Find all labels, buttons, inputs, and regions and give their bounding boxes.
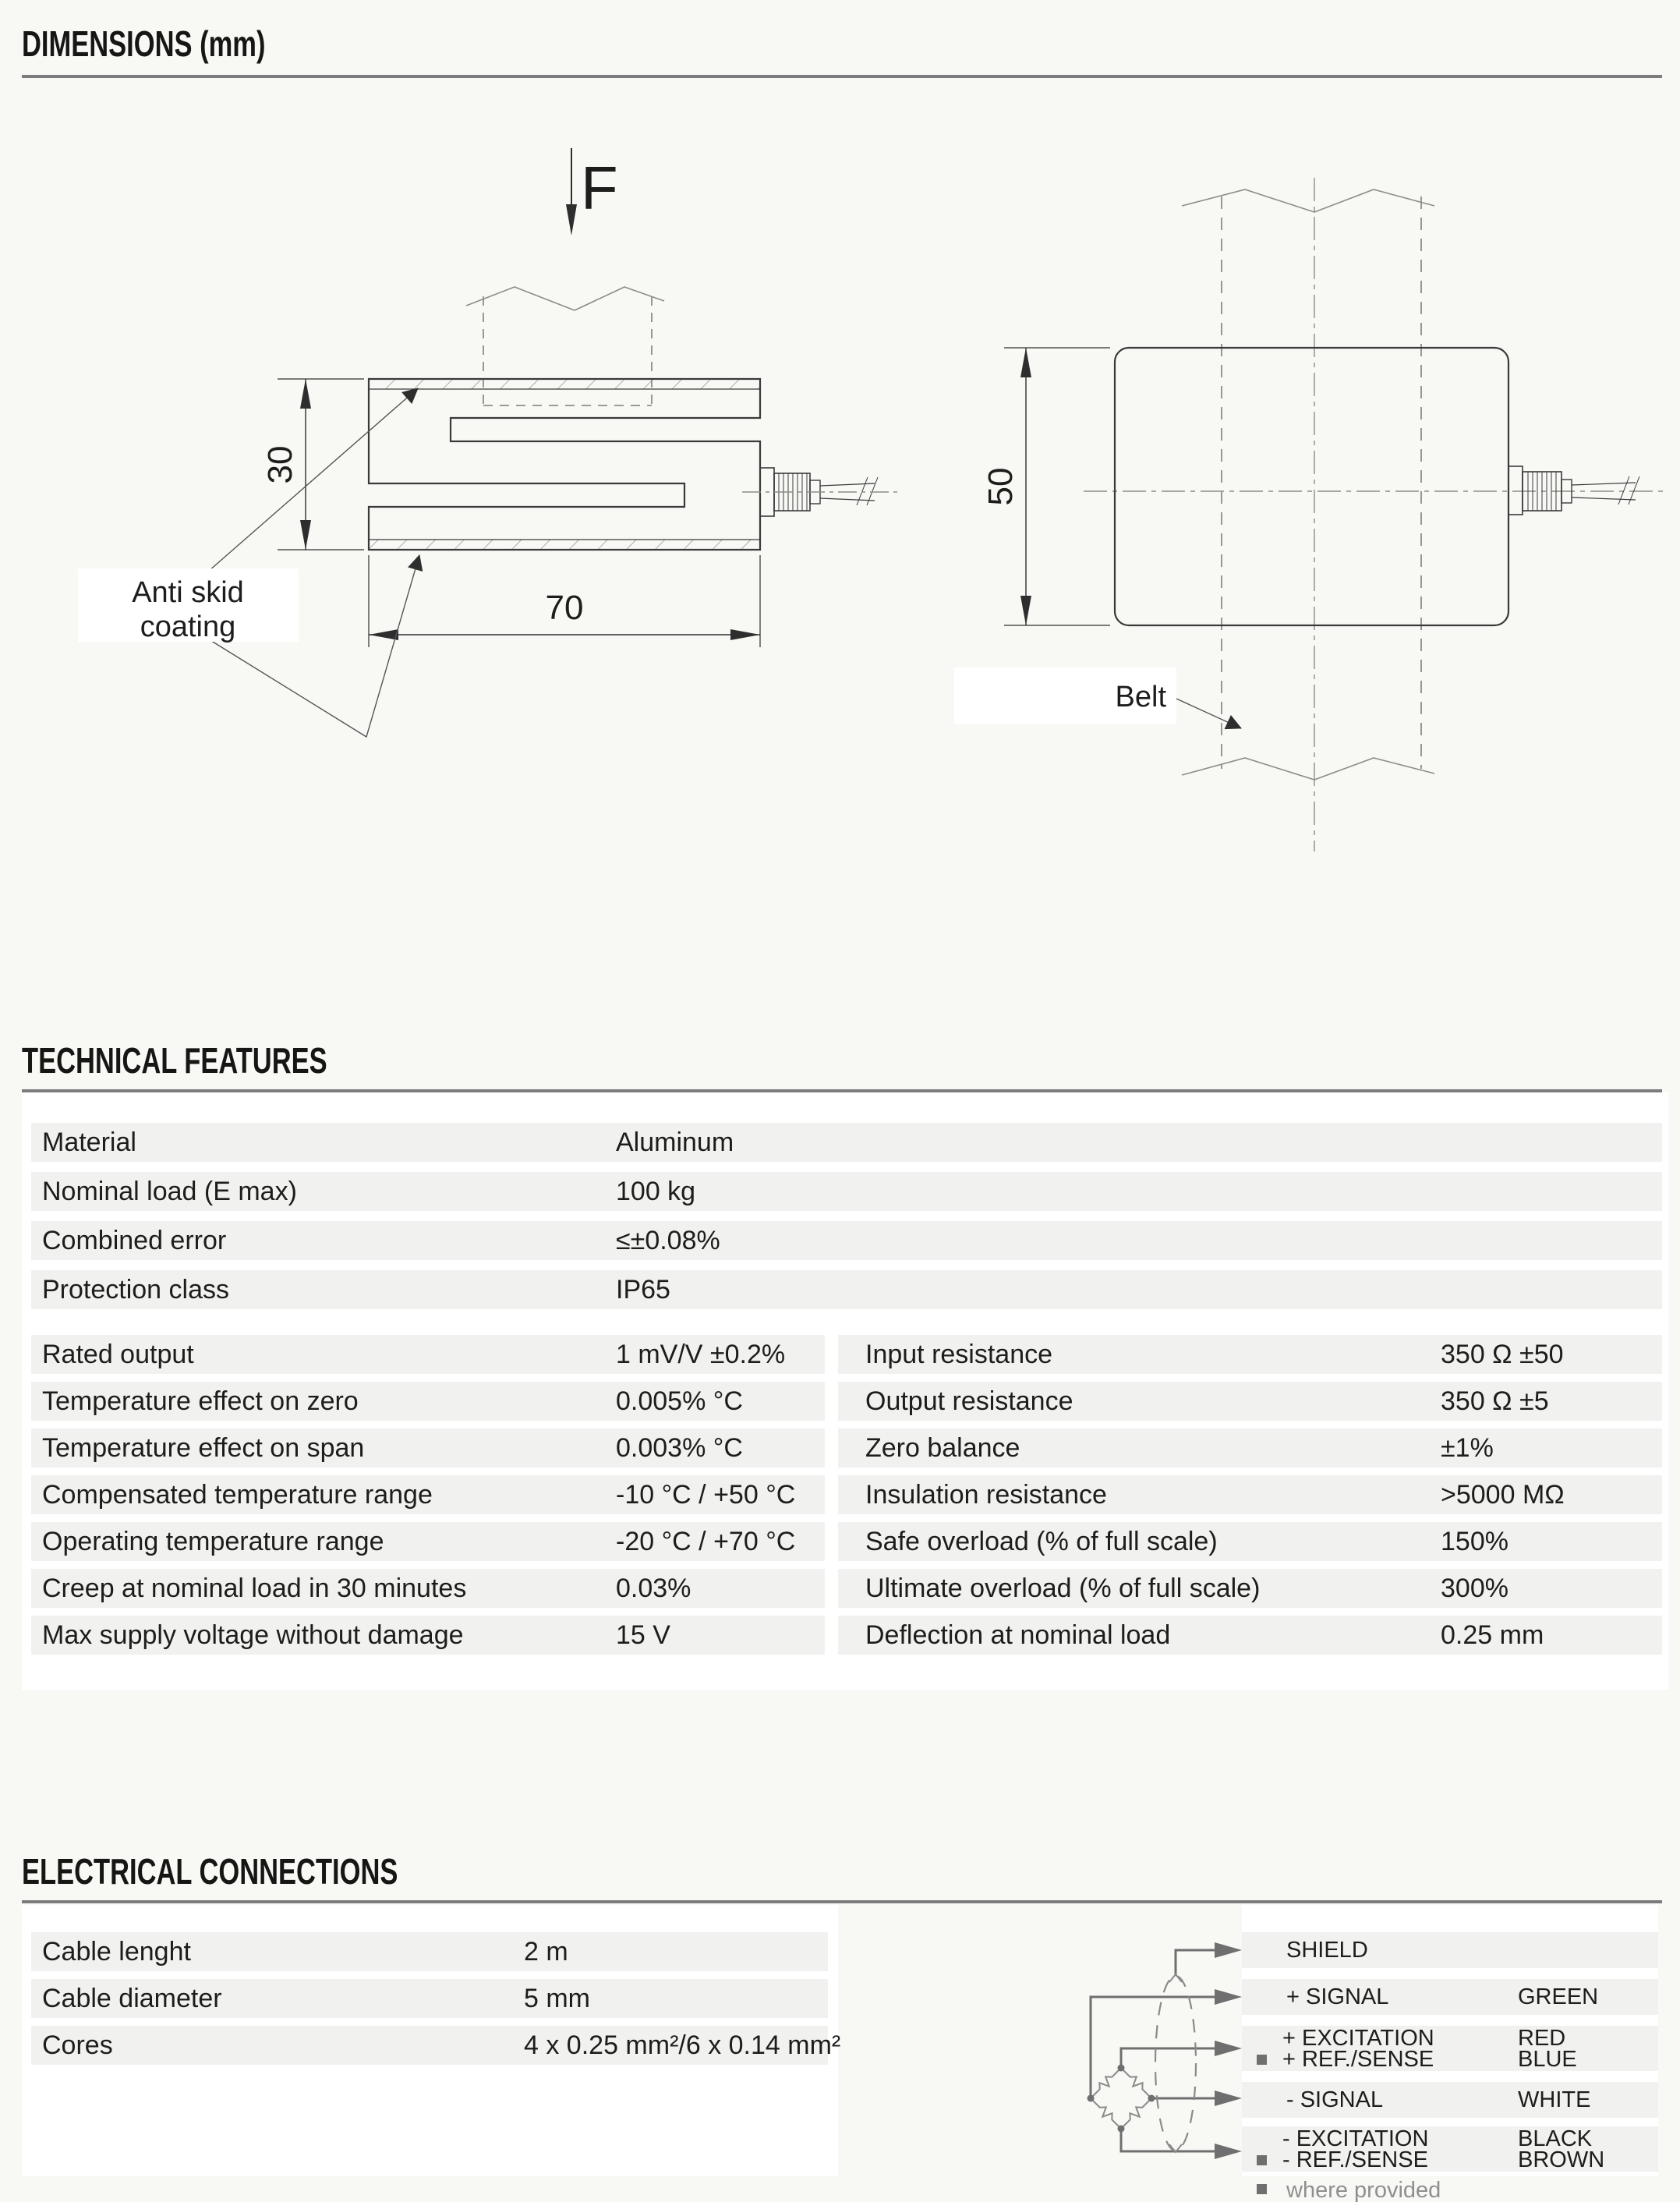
row-label: Temperature effect on zero <box>42 1382 359 1421</box>
shield-wire <box>1176 1950 1216 1976</box>
wire-label: - SIGNAL <box>1286 2082 1383 2118</box>
row-value: -20 °C / +70 °C <box>616 1522 795 1561</box>
cable-connector-front <box>1508 466 1639 515</box>
row-value: 150% <box>1441 1522 1508 1561</box>
row-value: 350 Ω ±50 <box>1441 1335 1564 1374</box>
belt-break-line <box>466 287 664 310</box>
wiring-row: + SIGNAL GREEN <box>1242 1979 1658 2015</box>
dimension-50: 50 <box>981 348 1110 625</box>
table-row: Safe overload (% of full scale) 150% <box>838 1522 1662 1561</box>
table-row: Temperature effect on zero 0.005% °C <box>31 1382 825 1421</box>
table-row: Operating temperature range -20 °C / +70… <box>31 1522 825 1561</box>
front-view-drawing: 50 Belt <box>954 178 1668 851</box>
wire-color: BLUE <box>1518 2048 1577 2070</box>
wire-label: + REF./SENSE <box>1282 2048 1434 2070</box>
row-value: ±1% <box>1441 1428 1494 1467</box>
row-label: Cable lenght <box>42 1932 191 1971</box>
section-title-technical: TECHNICAL FEATURES <box>22 1040 327 1082</box>
where-provided-marker <box>1257 2155 1267 2165</box>
row-label: Temperature effect on span <box>42 1428 364 1467</box>
table-row: Cable lenght 2 m <box>31 1932 828 1971</box>
anti-skid-label-line1: Anti skid <box>132 576 244 609</box>
row-value: 350 Ω ±5 <box>1441 1382 1549 1421</box>
row-label: Ultimate overload (% of full scale) <box>865 1569 1260 1608</box>
belt-break-bottom <box>1182 758 1434 780</box>
row-label: Safe overload (% of full scale) <box>865 1522 1218 1561</box>
minus-excitation-wire <box>1121 2129 1216 2151</box>
cable-shield-ellipse <box>1155 1976 1196 2151</box>
table-row: Deflection at nominal load 0.25 mm <box>838 1616 1662 1655</box>
table-row: Rated output 1 mV/V ±0.2% <box>31 1335 825 1374</box>
row-value: 0.003% °C <box>616 1428 743 1467</box>
anti-skid-label-line2: coating <box>140 611 236 643</box>
datasheet-page: DIMENSIONS (mm) F <box>0 0 1680 2202</box>
section-rule <box>22 75 1662 78</box>
bridge-resistor <box>1091 2098 1121 2129</box>
row-value: 15 V <box>616 1616 670 1655</box>
row-value: 1 mV/V ±0.2% <box>616 1335 785 1374</box>
row-label: Operating temperature range <box>42 1522 384 1561</box>
table-row: Compensated temperature range -10 °C / +… <box>31 1475 825 1514</box>
table-row: Material Aluminum <box>31 1123 1662 1162</box>
table-row: Cores 4 x 0.25 mm²/6 x 0.14 mm² <box>31 2026 828 2065</box>
belt-break-top <box>1182 189 1434 212</box>
row-value: >5000 MΩ <box>1441 1475 1565 1514</box>
bridge-resistor <box>1121 2098 1151 2129</box>
where-provided-marker <box>1257 2055 1267 2065</box>
bridge-resistor <box>1121 2068 1151 2098</box>
section-title-electrical: ELECTRICAL CONNECTIONS <box>22 1851 398 1892</box>
top-plate-hatching <box>370 380 759 389</box>
row-label: Cores <box>42 2026 113 2065</box>
dimension-30: 30 <box>261 379 364 550</box>
arrow-head <box>1215 2090 1242 2106</box>
row-label: Rated output <box>42 1335 194 1374</box>
wire-color: GREEN <box>1518 1979 1598 2015</box>
wire-label: + SIGNAL <box>1286 1979 1388 2015</box>
bridge-wiring-diagram <box>1037 1910 1247 2202</box>
section-rule <box>22 1900 1662 1903</box>
arrow-head <box>1215 2041 1242 2056</box>
height-dim-label: 30 <box>261 446 299 484</box>
where-provided-marker <box>1257 2184 1267 2194</box>
bridge-nodes <box>1088 2065 1155 2133</box>
load-cell-body-outline <box>369 379 760 550</box>
arrow-head <box>1215 1989 1242 2005</box>
table-row: Nominal load (E max) 100 kg <box>31 1172 1662 1211</box>
row-value: 0.005% °C <box>616 1382 743 1421</box>
belt-label: Belt <box>1116 681 1167 713</box>
table-row: Ultimate overload (% of full scale) 300% <box>838 1569 1662 1608</box>
row-label: Compensated temperature range <box>42 1475 433 1514</box>
wire-label: - EXCITATION <box>1282 2128 1428 2150</box>
row-value: 5 mm <box>524 1979 590 2018</box>
row-value: IP65 <box>616 1270 670 1309</box>
table-row: Output resistance 350 Ω ±5 <box>838 1382 1662 1421</box>
footnote-text: where provided <box>1286 2177 1441 2202</box>
force-label: F <box>581 154 618 222</box>
wire-label: + EXCITATION <box>1282 2027 1434 2049</box>
table-row: Combined error ≤±0.08% <box>31 1221 1662 1260</box>
table-row: Max supply voltage without damage 15 V <box>31 1616 825 1655</box>
row-value: 100 kg <box>616 1172 695 1211</box>
row-value: 4 x 0.25 mm²/6 x 0.14 mm² <box>524 2026 840 2065</box>
row-label: Zero balance <box>865 1428 1020 1467</box>
table-row: Input resistance 350 Ω ±50 <box>838 1335 1662 1374</box>
wire-label: SHIELD <box>1286 1932 1368 1968</box>
row-value: 0.03% <box>616 1569 691 1608</box>
wire-color: BROWN <box>1518 2149 1604 2171</box>
row-label: Insulation resistance <box>865 1475 1107 1514</box>
side-view-drawing: F <box>78 148 898 737</box>
table-row: Creep at nominal load in 30 minutes 0.03… <box>31 1569 825 1608</box>
table-row: Zero balance ±1% <box>838 1428 1662 1467</box>
row-label: Cable diameter <box>42 1979 222 2018</box>
wire-color: WHITE <box>1518 2082 1590 2118</box>
arrow-head <box>1215 2144 1242 2159</box>
row-label: Max supply voltage without damage <box>42 1616 464 1655</box>
dimension-drawings: F <box>0 94 1680 1014</box>
row-label: Output resistance <box>865 1382 1073 1421</box>
load-cell-body-front <box>1115 348 1508 625</box>
wiring-row: - SIGNAL WHITE <box>1242 2082 1658 2118</box>
wiring-row: + EXCITATION RED + REF./SENSE BLUE <box>1242 2026 1658 2071</box>
belt-callout: Belt <box>954 667 1241 728</box>
width-dim-label: 70 <box>546 589 584 627</box>
row-label: Material <box>42 1123 136 1162</box>
table-row: Protection class IP65 <box>31 1270 1662 1309</box>
front-height-dim-label: 50 <box>981 468 1020 506</box>
row-value: 2 m <box>524 1932 568 1971</box>
row-label: Deflection at nominal load <box>865 1616 1170 1655</box>
wheatstone-bridge <box>1091 2068 1151 2129</box>
row-value: ≤±0.08% <box>616 1221 720 1260</box>
row-label: Input resistance <box>865 1335 1052 1374</box>
row-label: Protection class <box>42 1270 229 1309</box>
table-row: Temperature effect on span 0.003% °C <box>31 1428 825 1467</box>
row-value: 300% <box>1441 1569 1508 1608</box>
dimension-70: 70 <box>369 555 760 647</box>
wire-color: RED <box>1518 2027 1565 2049</box>
wiring-footnote: where provided <box>1242 2177 1647 2202</box>
row-value: 0.25 mm <box>1441 1616 1544 1655</box>
plus-excitation-wire <box>1121 2048 1216 2068</box>
wiring-row: - EXCITATION BLACK - REF./SENSE BROWN <box>1242 2126 1658 2172</box>
row-label: Combined error <box>42 1221 226 1260</box>
bottom-plate-hatching <box>370 540 759 549</box>
arrow-head <box>1215 1942 1242 1958</box>
wiring-row: SHIELD <box>1242 1932 1658 1968</box>
force-arrow-head <box>566 204 577 235</box>
row-value: -10 °C / +50 °C <box>616 1475 795 1514</box>
bridge-resistor <box>1091 2068 1121 2098</box>
wire-color: BLACK <box>1518 2128 1592 2150</box>
table-row: Cable diameter 5 mm <box>31 1979 828 2018</box>
wire-label: - REF./SENSE <box>1282 2149 1428 2171</box>
row-value: Aluminum <box>616 1123 734 1162</box>
section-title-dimensions: DIMENSIONS (mm) <box>22 23 265 65</box>
table-row: Insulation resistance >5000 MΩ <box>838 1475 1662 1514</box>
row-label: Creep at nominal load in 30 minutes <box>42 1569 466 1608</box>
row-label: Nominal load (E max) <box>42 1172 297 1211</box>
